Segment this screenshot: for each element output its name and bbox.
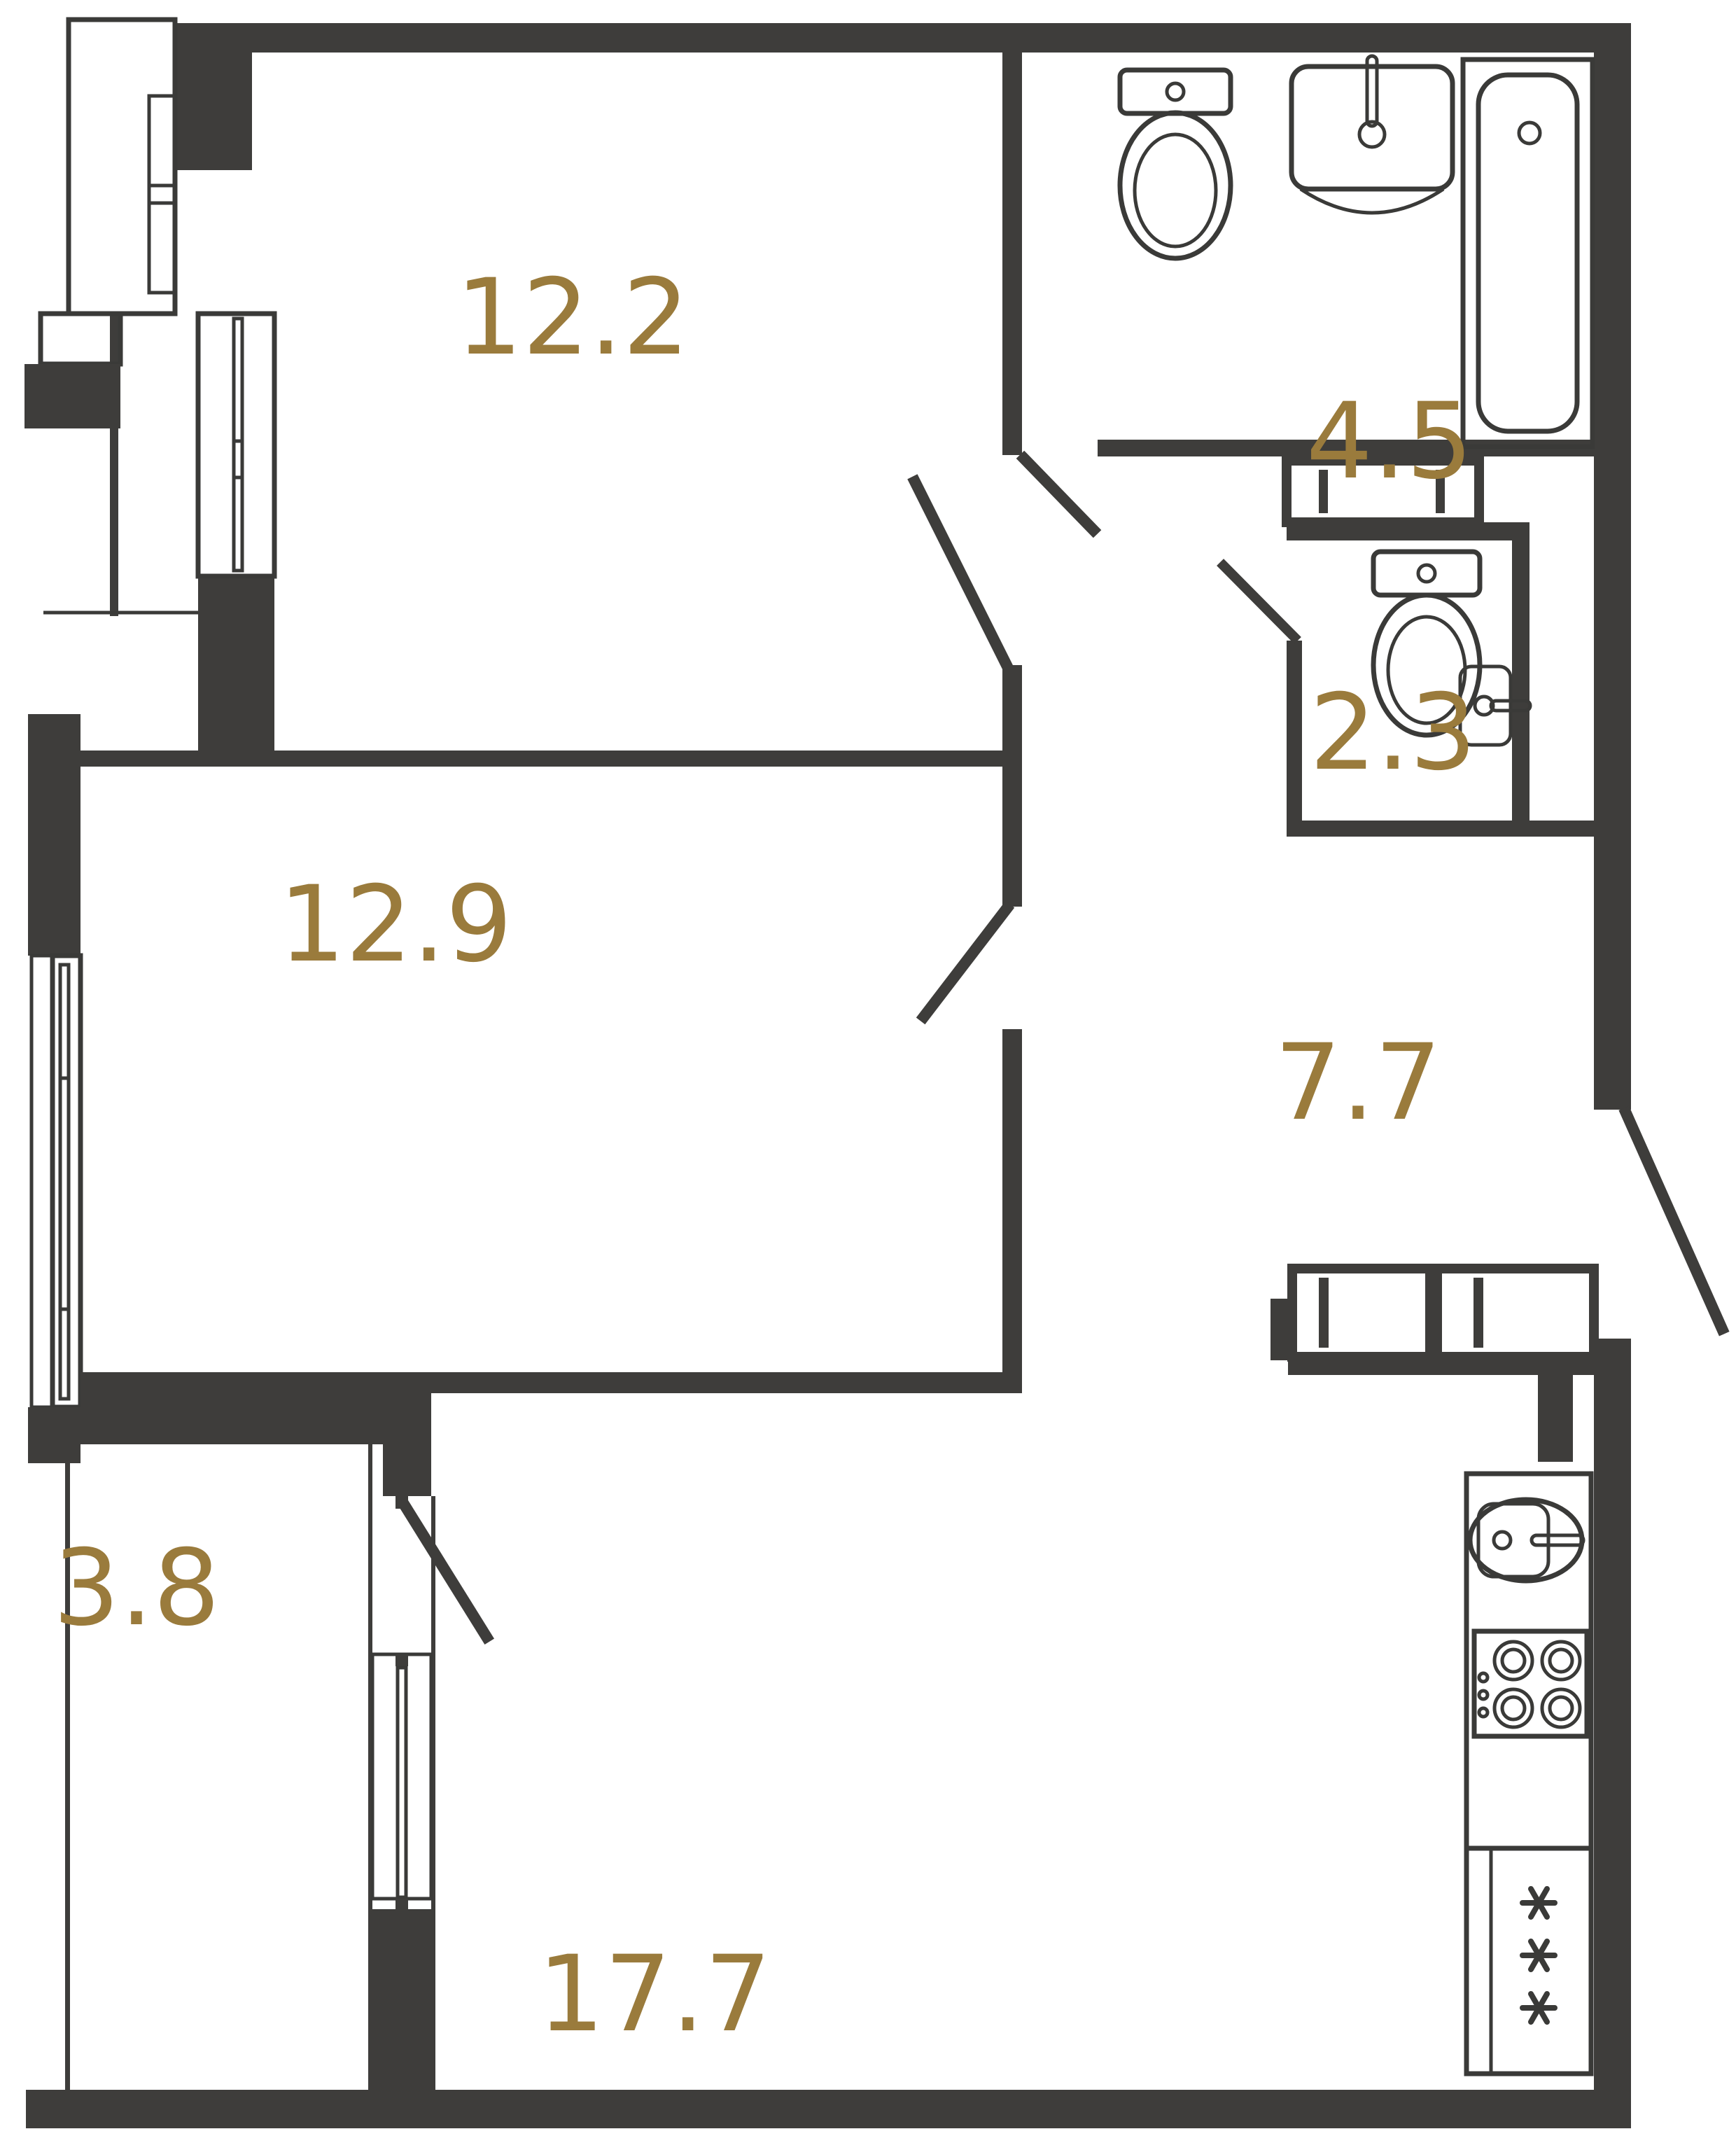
wall-kitchen-duct-block [1538,1375,1573,1462]
wall-12-2-12-9 [28,751,1022,767]
balcony-door-leaf [405,1505,486,1637]
wall-corner-block-top-left [175,23,252,170]
floor-plan-canvas: 12.2 4.5 12.9 2.3 7.7 3.8 17.7 [0,0,1736,2150]
wall-wc-top [1287,522,1529,540]
wc-door-leaf [1224,566,1294,637]
wall-hall-kitchen [1288,1357,1594,1375]
bathroom-door-leaf [1024,459,1093,530]
wall-hall-west-lower [1002,1029,1022,1393]
wall-wc-west [1287,641,1302,821]
fridge-snowflake-icon [1522,1889,1555,1917]
wc-area-label: 2.3 [1310,672,1477,794]
wall-right-lower [1594,1339,1631,2128]
balcony-window-cap-top [395,1654,408,1666]
wall-pier-left [28,714,80,956]
window-pane-12-9 [60,965,69,1399]
bathroom-sink-icon [1291,56,1452,213]
wall-balcony-jamb [383,1393,431,1496]
stove-icon [1474,1631,1587,1736]
wall-hall-west-upper [1002,53,1022,455]
room-12-2-door-leaf [915,482,1007,665]
wall-wc-bottom [1287,821,1594,837]
bathtub-icon [1463,60,1592,447]
balcony-window [372,1654,431,1899]
facade-block [24,364,120,428]
wall-under-balcony-window [372,1909,435,2090]
wall-block-12-9-balcony [28,1407,80,1463]
kitchen-living-area-label: 17.7 [538,1934,771,2055]
hall-wardrobe-right-icon [1437,1269,1594,1357]
hall-wardrobe-left-icon [1292,1269,1430,1357]
floor-plan: 12.2 4.5 12.9 2.3 7.7 3.8 17.7 [0,0,1736,2150]
room-12-9-window [52,956,80,1407]
fridge-icon [1466,1848,1591,2074]
room-12-2-area-label: 12.2 [456,257,689,379]
fridge-snowflake-icon [1522,1994,1555,2022]
wall-hall-west-stub [1002,665,1022,907]
wall-pier-12-2 [198,576,274,753]
room-12-2-window [198,314,274,576]
balcony-railing [149,96,175,293]
fridge-snowflake-icon [1522,1941,1555,1969]
wall-12-9-kitchen [80,1372,1022,1393]
wall-bottom [26,2090,1631,2128]
room-12-9-door-leaf [924,909,1007,1017]
hallway-area-label: 7.7 [1275,1022,1442,1144]
facade-balcony-outline [69,20,175,314]
balcony-window-cap-bottom [395,1899,408,1909]
bathroom-area-label: 4.5 [1306,381,1473,503]
kitchen-sink-icon [1470,1500,1583,1581]
facade-railing-line [110,314,118,616]
wall-top [175,23,1631,53]
wall-right-upper [1594,23,1631,1110]
wall-wc-east [1512,540,1529,821]
room-12-9-area-label: 12.9 [279,864,512,986]
balcony-area-label: 3.8 [53,1528,220,1649]
window-sill-12-9 [31,956,52,1407]
wall-balcony-top [80,1393,383,1444]
bathroom-toilet-icon [1120,70,1231,258]
window-pane-12-2 [234,319,242,571]
balcony-window-pane [398,1668,406,1897]
entrance-door-leaf [1626,1113,1722,1329]
wall-closet-stub [1270,1299,1288,1360]
facade-ledge [41,314,120,364]
